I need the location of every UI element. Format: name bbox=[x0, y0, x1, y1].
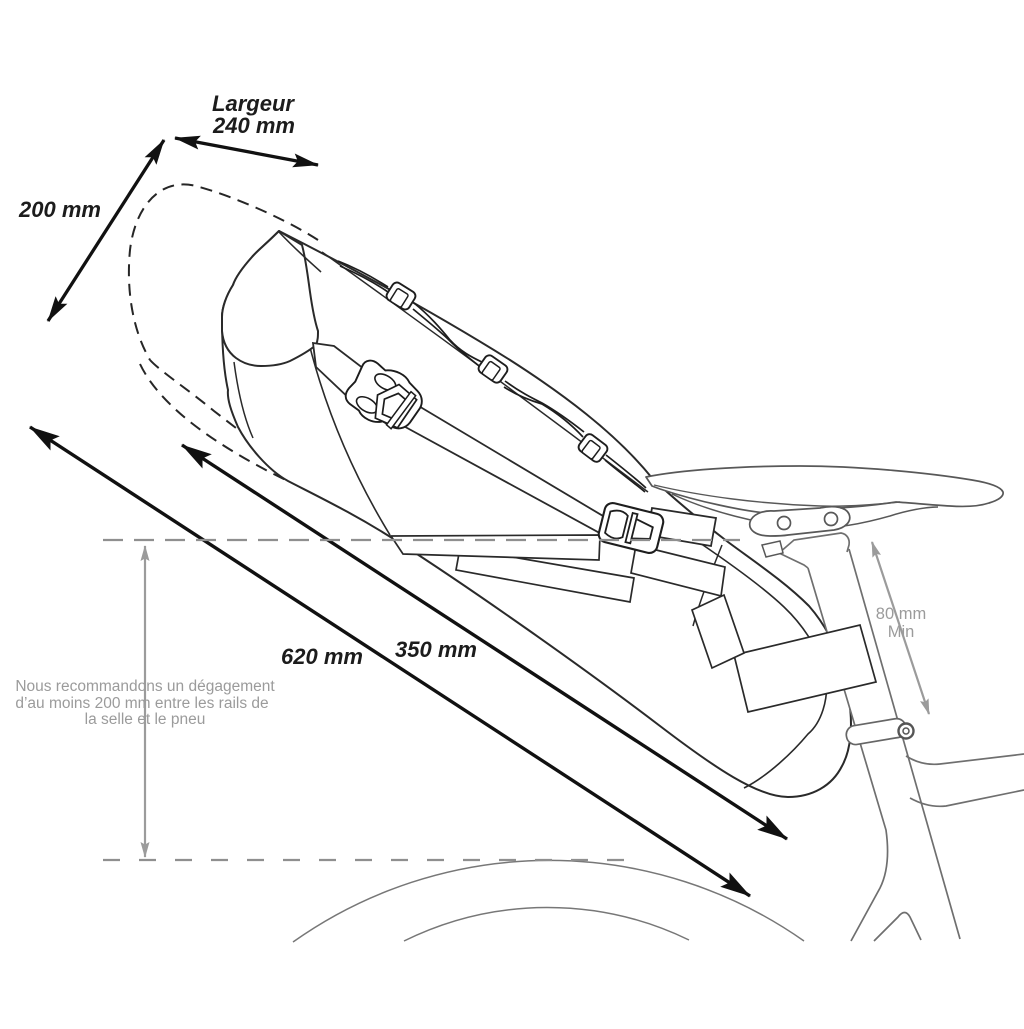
svg-text:350 mm: 350 mm bbox=[395, 637, 477, 662]
svg-text:200 mm: 200 mm bbox=[18, 197, 101, 222]
svg-text:d’au moins 200 mm entre les ra: d’au moins 200 mm entre les rails de bbox=[15, 695, 268, 712]
svg-text:620 mm: 620 mm bbox=[281, 644, 363, 669]
svg-text:80 mm: 80 mm bbox=[876, 605, 926, 623]
svg-text:240 mm: 240 mm bbox=[212, 113, 295, 138]
svg-text:Nous recommandons un dégagemen: Nous recommandons un dégagement bbox=[15, 678, 275, 695]
svg-text:la selle et le pneu: la selle et le pneu bbox=[85, 711, 206, 728]
svg-text:Min: Min bbox=[888, 623, 915, 641]
